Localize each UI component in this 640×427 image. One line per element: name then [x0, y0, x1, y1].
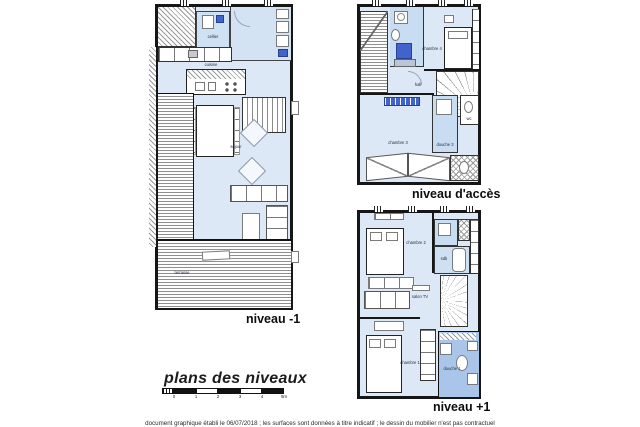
terrace-side [158, 93, 194, 239]
scale-tick-label: 5m [281, 395, 287, 399]
radiator [278, 49, 288, 57]
roof-window-panel [408, 153, 450, 181]
closet-column [472, 9, 479, 69]
room-label: chambre 1 [400, 361, 419, 365]
plan-label-niveau-moins-1: niveau -1 [246, 312, 300, 326]
interior-wall [360, 317, 420, 319]
desk [374, 321, 404, 331]
scale-tick-label: 3 [239, 395, 241, 399]
wall-hatch-stub [372, 0, 381, 6]
sofa [230, 185, 288, 202]
sink [459, 161, 469, 174]
vanity [467, 341, 478, 351]
scale-bar-lead [162, 388, 174, 394]
room-label: douche 1 [444, 367, 461, 371]
scale-segment [262, 388, 284, 394]
washer-door [397, 13, 405, 21]
exterior-wall-hatch [149, 47, 156, 247]
wall-hatch-stub [264, 0, 273, 6]
kitchen-sink [188, 50, 198, 58]
bed-bench [384, 97, 420, 106]
vanity [394, 59, 416, 67]
wall-hatch-stub [408, 206, 417, 212]
pillow [369, 339, 381, 348]
staircase [158, 7, 196, 47]
room-label: cuisine [205, 63, 218, 67]
scale-tick-label: 0 [173, 395, 175, 399]
wall-hatch-stub [406, 0, 415, 6]
cooktop [223, 81, 241, 92]
dresser [368, 277, 414, 289]
boiler-unit [216, 15, 224, 23]
island-sink [195, 82, 205, 91]
room-label: chambre 2 [406, 241, 425, 245]
scale-tick-label: 4 [261, 395, 263, 399]
pillow [384, 339, 396, 348]
dining-table [196, 105, 234, 157]
pillow [370, 232, 382, 241]
wall-hatch-stub [374, 206, 383, 212]
pillow [386, 232, 398, 241]
sofa [364, 291, 410, 309]
room-label: terrasse [175, 271, 190, 275]
scale-segment [240, 388, 262, 394]
wall-hatch-stub [466, 206, 475, 212]
rug [238, 157, 266, 185]
bathtub [452, 248, 466, 272]
vanity [467, 373, 478, 385]
legal-caption: document graphique établi le 06/07/2018 … [145, 420, 495, 427]
plan-label-niveau-plus-1: niveau +1 [433, 400, 490, 414]
closet [276, 21, 289, 33]
room-label: cellier [208, 35, 219, 39]
roof-window-panel [366, 153, 408, 181]
appliance [202, 15, 214, 29]
room-label: sdb [441, 257, 448, 261]
wall-hatch-stub [438, 0, 447, 6]
scale-segment [196, 388, 218, 394]
pillow [448, 31, 468, 39]
spiral-staircase [440, 275, 468, 327]
room-label: wc [466, 117, 471, 121]
sheet-title: plans des niveaux [164, 370, 307, 388]
plan-label-niveau-acces: niveau d'accès [412, 187, 500, 201]
plan-niveau-acces: chambre 4 hall chambre 3 douche 3 wc [357, 4, 481, 185]
island-hatch [187, 70, 245, 79]
wall-hatch-stub [180, 0, 189, 6]
room-label: séjour [230, 145, 241, 149]
scale-bar-segments [162, 388, 284, 394]
kitchen-island [186, 69, 246, 95]
floor-plan-sheet: cellier cuisine s [0, 0, 640, 427]
scale-tick-label: 2 [217, 395, 219, 399]
toilet [464, 101, 473, 113]
flue-shaft [458, 219, 470, 241]
scale-bar: 0 1 2 3 4 5m [162, 388, 284, 402]
velux-window [374, 213, 404, 220]
closet [276, 35, 289, 47]
island-sink [208, 82, 216, 91]
shower [396, 43, 412, 59]
tv-console [412, 285, 430, 291]
roof-slope-line [360, 11, 388, 51]
room-label: hall [415, 83, 421, 87]
closet [276, 9, 289, 19]
shower-tray [438, 223, 451, 236]
lounge-furniture [202, 250, 230, 260]
plan-niveau-plus-1: chambre 2 sdb salon TV chambre 1 douch [357, 210, 481, 399]
interior-wall [360, 93, 434, 95]
room-label: douche 3 [437, 143, 454, 147]
shower-hatch [440, 333, 476, 340]
plan-niveau-moins-1: cellier cuisine s [155, 4, 293, 310]
wall-hatch-stub [464, 0, 473, 6]
caption-row: document graphique établi le 06/07/2018 … [0, 413, 640, 427]
wall-hatch-stub [222, 0, 231, 6]
toilet [391, 29, 400, 41]
shower-tray [436, 99, 452, 115]
scale-tick-label: 1 [195, 395, 197, 399]
wall-hatch-stub [440, 206, 449, 212]
balcony-bumpout [291, 251, 299, 263]
room-label: chambre 3 [388, 141, 407, 145]
scale-segment [218, 388, 240, 394]
closet-column [470, 219, 479, 274]
nightstand [444, 15, 454, 23]
closet-column [420, 329, 436, 381]
shower-tray [440, 343, 452, 355]
balcony-bumpout [291, 101, 299, 115]
room-label: salon TV [412, 295, 428, 299]
room-label: chambre 4 [422, 47, 441, 51]
scale-segment [174, 388, 196, 394]
